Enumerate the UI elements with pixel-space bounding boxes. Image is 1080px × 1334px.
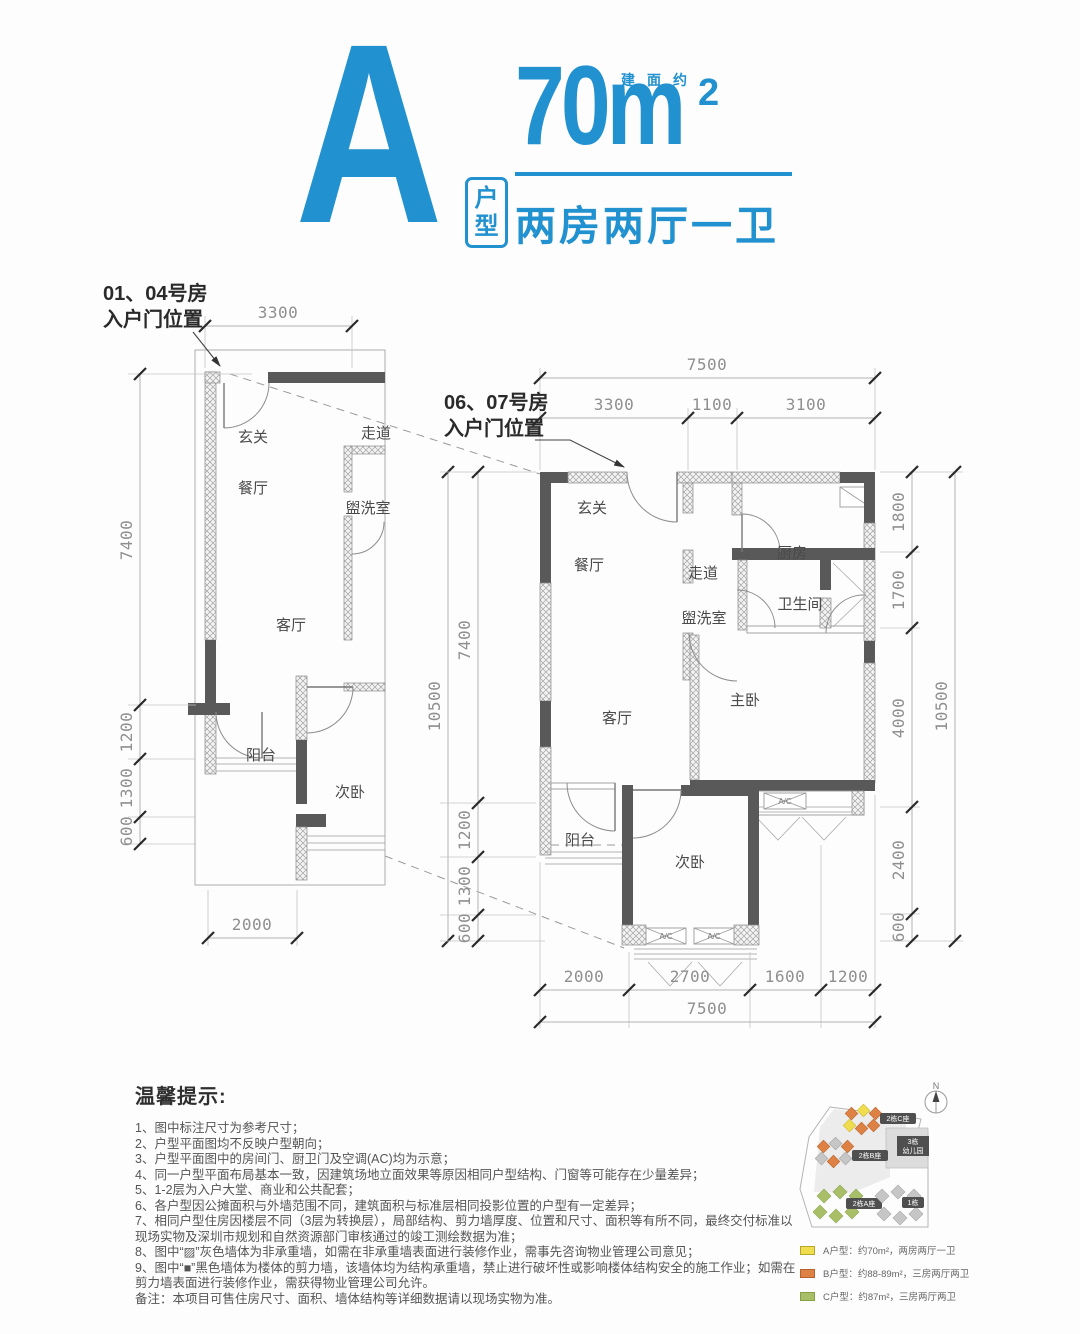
room-label-bath: 卫生间: [777, 596, 822, 613]
svg-text:01、04号房: 01、04号房: [103, 281, 208, 305]
svg-text:1700: 1700: [889, 570, 908, 611]
projection-lines: [230, 374, 624, 948]
svg-text:600: 600: [455, 913, 474, 943]
svg-text:10500: 10500: [932, 681, 951, 732]
left-plan-room-labels: 玄关 走道 餐厅 盥洗室 客厅 阳台 次卧: [238, 425, 391, 801]
svg-text:2700: 2700: [670, 967, 711, 986]
svg-text:A/C: A/C: [707, 932, 721, 941]
svg-text:1栋: 1栋: [908, 1198, 919, 1207]
dim-left-bottom: 2000: [232, 915, 273, 934]
svg-text:1200: 1200: [455, 810, 474, 851]
ac-unit-bedroom2-b: A/C: [694, 928, 734, 944]
svg-text:2栋C座: 2栋C座: [887, 1114, 910, 1123]
right-plan: A/C A/C A/C: [425, 355, 963, 1028]
svg-text:1300: 1300: [455, 866, 474, 907]
legend-row-c: C户型：约87m²，三房两厅两卫: [800, 1289, 969, 1303]
svg-text:3栋: 3栋: [908, 1137, 919, 1146]
note-item: 4、同一户型平面布局基本一致，因建筑场地立面效果等原因相同户型结构、门窗等可能存…: [135, 1168, 803, 1184]
legend-swatch-a: [800, 1246, 815, 1255]
right-plan-ac-units: A/C A/C A/C: [646, 793, 806, 944]
note-item: 6、各户型因公摊面积与外墙范围不同，建筑面积与标准层相同投影位置的户型有一定差异…: [135, 1199, 803, 1215]
site-map: N 2栋C座 3栋 幼儿: [800, 1081, 947, 1227]
room-label-living: 客厅: [276, 617, 306, 634]
room-label-wash: 盥洗室: [681, 610, 726, 627]
svg-text:1600: 1600: [765, 967, 806, 986]
svg-text:600: 600: [889, 912, 908, 942]
legend-row-a: A户型：约70m²，两房两厅一卫: [800, 1243, 969, 1257]
dim-right-bottom-total: 7500: [687, 999, 728, 1018]
svg-text:2栋A座: 2栋A座: [853, 1199, 876, 1208]
dim-left-top: 3300: [258, 303, 299, 322]
svg-text:2栋B座: 2栋B座: [859, 1151, 882, 1160]
room-label-dining: 餐厅: [574, 557, 604, 574]
ac-unit-bedroom2-a: A/C: [646, 928, 686, 944]
svg-text:1100: 1100: [692, 395, 733, 414]
note-item: 1、图中标注尺寸为参考尺寸；: [135, 1121, 803, 1137]
room-label-balcony: 阳台: [246, 747, 276, 764]
dim-left-1300: 1300: [117, 768, 136, 809]
svg-text:幼儿园: 幼儿园: [903, 1146, 924, 1155]
room-label-entry: 玄关: [238, 429, 268, 446]
note-item: 9、图中“■”黑色墙体为楼体的剪力墙，该墙体均为结构承重墙，禁止进行破坏性或影响…: [135, 1261, 803, 1292]
dim-left-7400: 7400: [117, 520, 136, 561]
left-plan: 玄关 走道 餐厅 盥洗室 客厅 阳台 次卧 3300: [117, 303, 391, 946]
dim-left-600: 600: [117, 816, 136, 846]
note-item: 5、1-2层为入户大堂、商业和公共配套；: [135, 1183, 803, 1199]
callout-rooms-01-04: 01、04号房 入户门位置: [103, 281, 220, 366]
room-label-bedroom2: 次卧: [335, 784, 365, 801]
room-label-master: 主卧: [730, 692, 760, 709]
left-plan-dimensions: 3300 7400 1200 1300 600 2000: [117, 303, 358, 946]
note-item: 3、户型平面图中的房间门、厨卫门及空调(AC)均为示意；: [135, 1152, 803, 1168]
room-label-bedroom2: 次卧: [675, 854, 705, 871]
svg-text:10500: 10500: [425, 681, 444, 732]
room-label-dining: 餐厅: [238, 480, 268, 497]
note-item: 2、户型平面图均不反映户型朝向；: [135, 1137, 803, 1153]
site-building-kindergarten: 3栋 幼儿园: [886, 1128, 929, 1168]
room-label-kitchen: 厨房: [777, 545, 807, 562]
svg-text:入户门位置: 入户门位置: [103, 307, 203, 331]
legend-swatch-b: [800, 1269, 815, 1278]
svg-text:A/C: A/C: [659, 932, 673, 941]
svg-text:A/C: A/C: [778, 797, 792, 806]
svg-text:4000: 4000: [889, 698, 908, 739]
room-label-entry: 玄关: [577, 500, 607, 517]
dim-left-1200: 1200: [117, 712, 136, 753]
svg-text:1200: 1200: [828, 967, 869, 986]
ac-unit-master: A/C: [764, 793, 806, 809]
svg-text:3300: 3300: [594, 395, 635, 414]
legend-swatch-c: [800, 1292, 815, 1301]
right-plan-walls: [540, 472, 875, 986]
svg-text:3100: 3100: [786, 395, 827, 414]
note-item: 8、图中“▨”灰色墙体为非承重墙，如需在非承重墙表面进行装修作业，需事先咨询物业…: [135, 1245, 803, 1261]
svg-text:06、07号房: 06、07号房: [444, 390, 549, 414]
note-item: 7、相同户型住房因楼层不同（3层为转换层），局部结构、剪力墙厚度、位置和尺寸、面…: [135, 1214, 803, 1245]
notes-block: 温馨提示: 1、图中标注尺寸为参考尺寸； 2、户型平面图均不反映户型朝向； 3、…: [135, 1080, 803, 1307]
room-label-balcony: 阳台: [565, 832, 595, 849]
notes-remark: 备注：本项目可售住房尺寸、面积、墙体结构等详细数据请以现场实物为准。: [135, 1292, 803, 1308]
svg-text:7400: 7400: [455, 620, 474, 661]
svg-text:入户门位置: 入户门位置: [444, 416, 544, 440]
floorplan-sheet: A 户 型 70m 2 建面约 两房两厅一卫: [0, 0, 1080, 1334]
notes-title: 温馨提示:: [135, 1080, 803, 1109]
room-label-corridor: 走道: [361, 425, 391, 442]
site-building-cluster-1: 1栋: [875, 1185, 924, 1225]
svg-text:2400: 2400: [889, 840, 908, 881]
svg-text:N: N: [933, 1081, 940, 1091]
dim-right-top-total: 7500: [687, 355, 728, 374]
legend-row-b: B户型：约88-89m²，三房两厅两卫: [800, 1266, 969, 1280]
svg-text:2000: 2000: [564, 967, 605, 986]
room-label-wash: 盥洗室: [345, 500, 390, 517]
north-arrow: N: [925, 1081, 947, 1113]
unit-type-legend: A户型：约70m²，两房两厅一卫 B户型：约88-89m²，三房两厅两卫 C户型…: [800, 1243, 969, 1312]
room-label-corridor: 走道: [688, 565, 718, 582]
room-label-living: 客厅: [602, 710, 632, 727]
svg-text:1800: 1800: [889, 492, 908, 533]
